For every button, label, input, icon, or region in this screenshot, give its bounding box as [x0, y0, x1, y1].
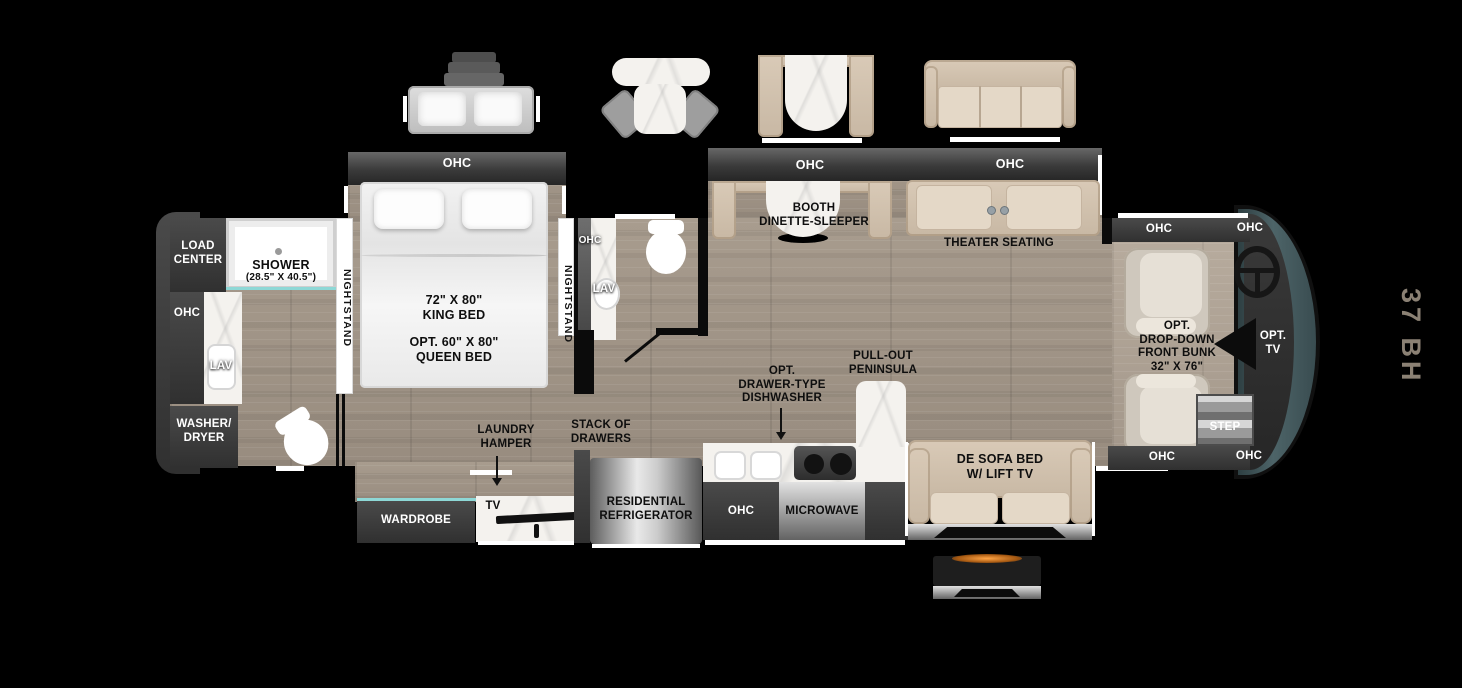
- refrigerator-label: RESIDENTIAL REFRIGERATOR: [588, 496, 704, 523]
- peninsula-label: PULL-OUT PENINSULA: [836, 350, 930, 377]
- theater-seating: [906, 180, 1100, 236]
- entry-step: [1196, 394, 1254, 446]
- floorplan-37bh: LOAD CENTER SHOWER (28.5" X 40.5") OHC L…: [0, 0, 1462, 688]
- kitchen-sink: [714, 451, 746, 480]
- dishwasher-arrow: [780, 408, 782, 438]
- laundry-hamper-arrow: [496, 456, 498, 484]
- model-badge: 37 BH: [1388, 288, 1426, 408]
- bed-slide-window: [344, 186, 348, 213]
- half-bath-toilet: [644, 218, 688, 278]
- sofa-floating: [924, 60, 1076, 132]
- shower-glass-edge: [226, 287, 336, 290]
- half-bath-ohc-label: OHC: [570, 235, 610, 247]
- lift-tv: [934, 527, 1066, 538]
- kitchen-end-cabinet: [865, 482, 908, 540]
- pullout-peninsula-counter: [856, 381, 906, 447]
- rear-lav-label: LAV: [199, 360, 243, 374]
- front-ohc-bottom-left-label: OHC: [1132, 451, 1192, 465]
- bench-with-steps: [400, 52, 542, 136]
- front-window: [1118, 213, 1248, 218]
- opt-tv-label: OPT. TV: [1250, 330, 1296, 357]
- cooktop: [794, 446, 856, 480]
- steering-wheel-icon: [1234, 246, 1280, 298]
- living-front-wall: [1102, 218, 1112, 244]
- front-ohc-bottom-right-label: OHC: [1220, 450, 1278, 464]
- microwave-label: MICROWAVE: [775, 505, 869, 519]
- nightstand-left-label: NIGHTSTAND: [337, 246, 353, 370]
- cupholder-icon: [1000, 206, 1009, 215]
- hall-wall-lower: [574, 330, 594, 394]
- kitchen-slide-edge: [705, 540, 905, 545]
- pillow: [462, 189, 532, 229]
- bedroom-bottom-window: [470, 470, 512, 475]
- refrigerator-slide-edge: [592, 544, 700, 548]
- living-slide-window: [950, 137, 1060, 142]
- dishwasher-label: OPT. DRAWER-TYPE DISHWASHER: [728, 365, 836, 406]
- bed-ohc-label: OHC: [348, 156, 566, 171]
- living-ohc-right-label: OHC: [968, 157, 1052, 172]
- wardrobe-label: WARDROBE: [360, 514, 472, 528]
- front-bunk-label: OPT. DROP-DOWN FRONT BUNK 32" X 76": [1120, 320, 1234, 374]
- sofa-label: DE SOFA BED W/ LIFT TV: [936, 452, 1064, 482]
- sofa-slide-edge: [905, 442, 908, 536]
- rear-ohc-label: OHC: [170, 307, 204, 321]
- living-ohc-left-label: OHC: [770, 158, 850, 173]
- cupholder-icon: [987, 206, 996, 215]
- pillow: [374, 189, 444, 229]
- booth-dinette-floating: [758, 55, 874, 139]
- bed-slide-window: [562, 186, 566, 214]
- washer-dryer-label: WASHER/ DRYER: [168, 418, 240, 445]
- tv-label: TV: [478, 500, 508, 514]
- tv-stand: [534, 524, 539, 538]
- stack-of-drawers-label: STACK OF DRAWERS: [556, 419, 646, 446]
- rear-window: [276, 466, 304, 471]
- kitchen-sink: [750, 451, 782, 480]
- step-label: STEP: [1196, 421, 1254, 435]
- bed-opt-label: OPT. 60" X 80" QUEEN BED: [360, 335, 548, 365]
- kitchen-ohc-label: OHC: [703, 505, 779, 519]
- booth-label: BOOTH DINETTE-SLEEPER: [750, 202, 878, 229]
- half-bath-wall-right: [698, 218, 708, 336]
- half-bath-window: [615, 214, 675, 219]
- theater-label: THEATER SEATING: [926, 237, 1072, 251]
- load-center-label: LOAD CENTER: [168, 240, 228, 267]
- bedroom-door-track: [336, 392, 339, 466]
- free-standing-table: [600, 56, 720, 140]
- bedroom-door-track: [342, 392, 345, 466]
- nightstand-right-label: NIGHTSTAND: [558, 248, 574, 360]
- sofa-slide-edge: [1092, 442, 1095, 536]
- shower-drain-icon: [275, 248, 282, 255]
- shower-size-label: (28.5" X 40.5"): [226, 272, 336, 284]
- half-bath-lav-label: LAV: [586, 283, 622, 297]
- front-ohc-top-left-label: OHC: [1128, 223, 1190, 237]
- exterior-entertainment-center: [930, 550, 1044, 600]
- shower-label: SHOWER: [226, 258, 336, 273]
- front-ohc-top-right-label: OHC: [1222, 222, 1278, 236]
- bed-size-label: 72" X 80" KING BED: [360, 293, 548, 323]
- laundry-hamper-label: LAUNDRY HAMPER: [464, 424, 548, 451]
- tv-slide-edge: [478, 541, 574, 545]
